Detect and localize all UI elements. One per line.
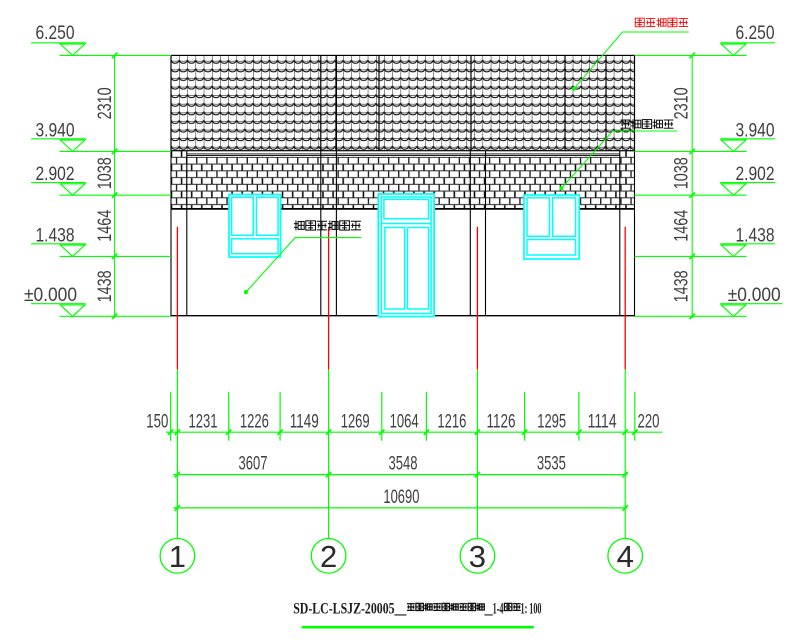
svg-text:1149: 1149: [290, 411, 319, 432]
svg-text:3535: 3535: [537, 454, 566, 475]
svg-text:3.940: 3.940: [36, 120, 75, 141]
svg-text:1216: 1216: [437, 411, 466, 432]
svg-text:6.250: 6.250: [36, 23, 75, 44]
svg-text:1: 100: 1: 100: [521, 600, 542, 617]
svg-text:1438: 1438: [95, 270, 116, 302]
svg-text:3.940: 3.940: [736, 120, 775, 141]
svg-text:1464: 1464: [672, 209, 693, 241]
svg-text:10690: 10690: [383, 487, 419, 508]
svg-text:SD-LC-LSJZ-20005__: SD-LC-LSJZ-20005__: [293, 600, 407, 617]
svg-text:1126: 1126: [487, 411, 516, 432]
svg-text:1.438: 1.438: [736, 225, 775, 246]
svg-text:6.250: 6.250: [736, 23, 775, 44]
svg-text:1114: 1114: [588, 411, 617, 432]
svg-text:1438: 1438: [672, 270, 693, 302]
svg-text:2.902: 2.902: [736, 164, 775, 185]
svg-text:4: 4: [617, 539, 634, 574]
svg-text:2.902: 2.902: [36, 164, 75, 185]
svg-text:220: 220: [638, 411, 660, 432]
svg-text:1.438: 1.438: [36, 225, 75, 246]
svg-text:2310: 2310: [95, 87, 116, 119]
svg-text:3548: 3548: [389, 454, 418, 475]
svg-text:1269: 1269: [341, 411, 370, 432]
svg-text:__1-4: __1-4: [484, 600, 504, 617]
svg-text:1038: 1038: [95, 157, 116, 189]
svg-text:150: 150: [146, 411, 168, 432]
svg-text:1226: 1226: [240, 411, 269, 432]
svg-text:1064: 1064: [390, 411, 419, 432]
svg-text:±0.000: ±0.000: [728, 285, 781, 306]
svg-text:±0.000: ±0.000: [24, 285, 77, 306]
svg-text:2310: 2310: [672, 87, 693, 119]
svg-text:1464: 1464: [95, 209, 116, 241]
svg-text:1295: 1295: [537, 411, 566, 432]
svg-text:3607: 3607: [239, 454, 268, 475]
svg-text:1: 1: [169, 539, 186, 574]
svg-text:3: 3: [469, 539, 486, 574]
svg-text:1038: 1038: [672, 157, 693, 189]
svg-text:1231: 1231: [189, 411, 218, 432]
svg-text:2: 2: [320, 539, 337, 574]
